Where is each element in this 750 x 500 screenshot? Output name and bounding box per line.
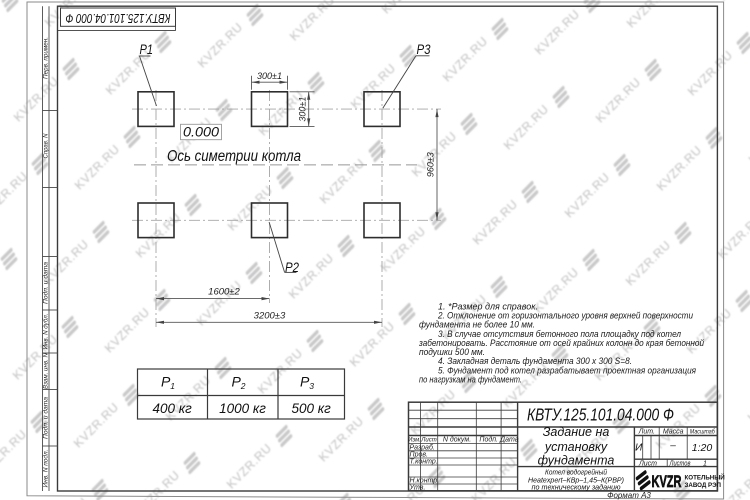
- svg-text:Масштаб: Масштаб: [690, 428, 715, 436]
- svg-text:500 кг: 500 кг: [292, 401, 332, 416]
- svg-text:P1: P1: [140, 42, 154, 57]
- svg-text:400 кг: 400 кг: [153, 401, 193, 416]
- svg-text:ЗАВОД РЭП: ЗАВОД РЭП: [685, 482, 722, 489]
- svg-text:Лист: Лист: [420, 437, 436, 443]
- svg-text:Задание на: Задание на: [543, 425, 610, 439]
- svg-text:Масса: Масса: [663, 429, 684, 436]
- svg-text:960±3: 960±3: [426, 152, 436, 177]
- svg-text:1: 1: [703, 461, 707, 468]
- svg-text:Лист: Лист: [638, 461, 657, 468]
- svg-text:Листов: Листов: [669, 461, 691, 468]
- svg-text:Н.контр.: Н.контр.: [410, 478, 440, 485]
- svg-text:по нагрузкам на фундамент.: по нагрузкам на фундамент.: [419, 374, 522, 385]
- svg-text:1600±2: 1600±2: [208, 287, 240, 298]
- svg-text:Ось симетрии котла: Ось симетрии котла: [167, 148, 301, 165]
- svg-text:установку: установку: [544, 440, 608, 454]
- svg-text:300±1: 300±1: [298, 97, 308, 122]
- svg-text:Взам. инв. N: Взам. инв. N: [43, 353, 50, 389]
- svg-text:3200±3: 3200±3: [254, 310, 286, 321]
- svg-text:КВТУ.125.101.04.000 Ф: КВТУ.125.101.04.000 Ф: [65, 11, 170, 25]
- svg-text:P3: P3: [417, 42, 431, 57]
- svg-text:Дата: Дата: [499, 436, 519, 443]
- svg-text:300±1: 300±1: [257, 71, 282, 81]
- svg-text:Разраб.: Разраб.: [410, 443, 435, 451]
- svg-text:1:20: 1:20: [692, 442, 713, 454]
- svg-text:P2: P2: [285, 260, 299, 275]
- svg-text:Пров.: Пров.: [410, 452, 429, 459]
- svg-text:КОТЕЛЬНЫЙ: КОТЕЛЬНЫЙ: [685, 474, 726, 482]
- svg-text:Утв.: Утв.: [409, 485, 426, 492]
- svg-text:Инв. N дубл.: Инв. N дубл.: [42, 314, 50, 350]
- svg-text:N докум.: N докум.: [443, 435, 471, 443]
- svg-text:Подп.: Подп.: [479, 435, 498, 443]
- svg-text:Изм.: Изм.: [408, 437, 421, 443]
- svg-text:И: И: [635, 443, 643, 454]
- svg-text:Подп. и дата: Подп. и дата: [42, 396, 50, 439]
- svg-text:0.000: 0.000: [183, 123, 219, 139]
- svg-text:1000 кг: 1000 кг: [219, 401, 266, 416]
- svg-text:Лит.: Лит.: [638, 429, 655, 436]
- svg-text:Т.контр.: Т.контр.: [410, 459, 438, 466]
- svg-text:Heatexpert–КВр–1,45–К(РВР): Heatexpert–КВр–1,45–К(РВР): [528, 478, 624, 485]
- svg-text:Котел водогрейный: Котел водогрейный: [545, 468, 607, 476]
- svg-text:Формат А3: Формат А3: [607, 491, 651, 500]
- svg-text:–: –: [669, 441, 676, 452]
- svg-text:фундамента: фундамента: [538, 454, 615, 468]
- svg-text:КВТУ.125.101.04.000 Ф: КВТУ.125.101.04.000 Ф: [527, 405, 674, 425]
- svg-text:Справ. N: Справ. N: [43, 133, 50, 158]
- svg-text:Подп. и дата: Подп. и дата: [42, 261, 50, 304]
- svg-text:Инв. N подл.: Инв. N подл.: [42, 450, 50, 488]
- svg-text:KVZR: KVZR: [652, 473, 682, 491]
- svg-text:Перв. примен.: Перв. примен.: [43, 37, 50, 79]
